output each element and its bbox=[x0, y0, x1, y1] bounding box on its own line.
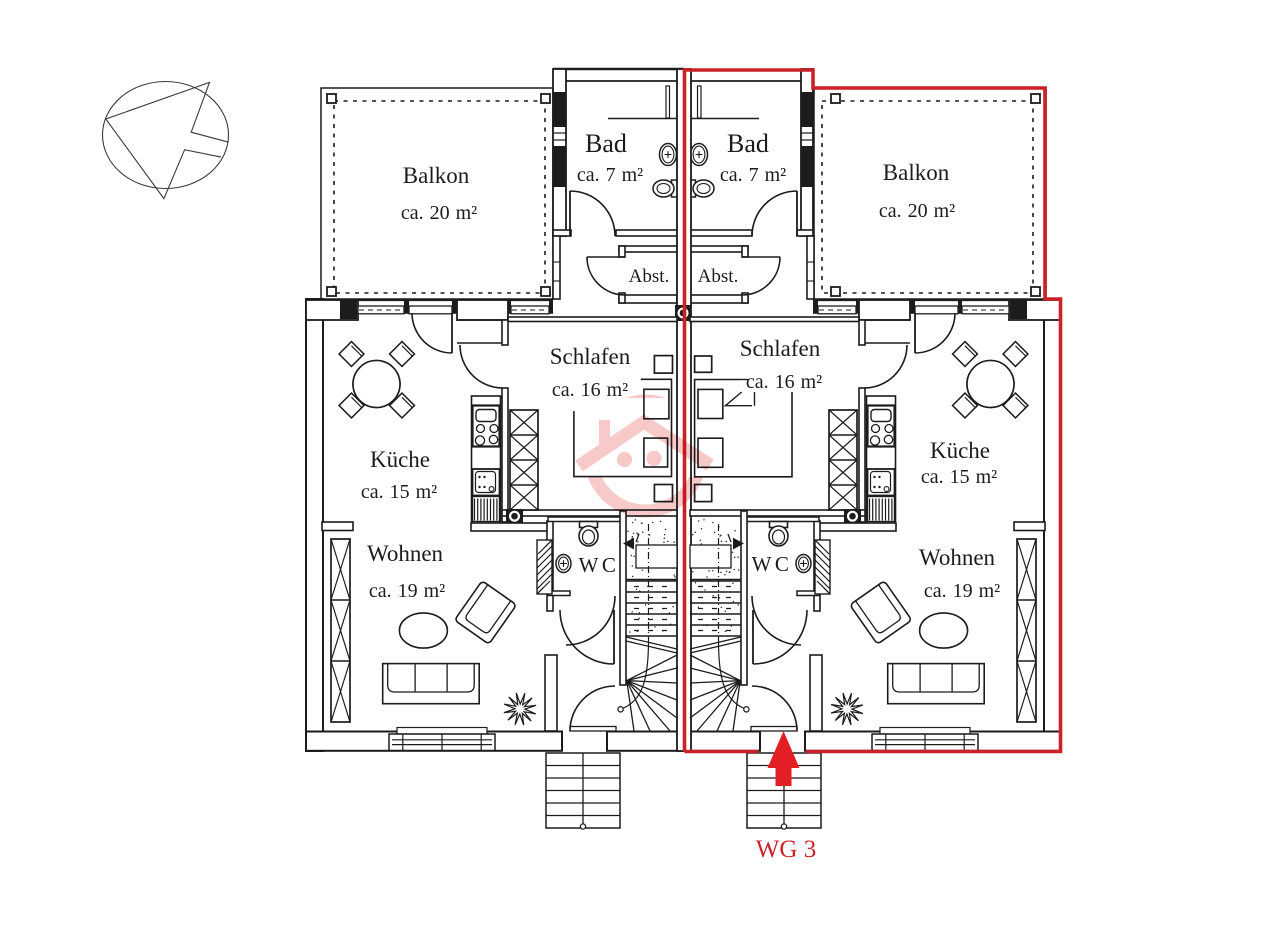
svg-text:Abst.: Abst. bbox=[698, 266, 739, 287]
svg-text:Abst.: Abst. bbox=[629, 266, 670, 287]
svg-text:Wohnen: Wohnen bbox=[367, 541, 444, 566]
svg-text:Schlafen: Schlafen bbox=[740, 336, 821, 361]
svg-text:Wohnen: Wohnen bbox=[919, 545, 996, 570]
svg-text:Balkon: Balkon bbox=[883, 160, 950, 185]
svg-text:ca. 15 m²: ca. 15 m² bbox=[921, 466, 997, 488]
svg-text:ca. 16 m²: ca. 16 m² bbox=[746, 371, 822, 393]
svg-text:ca. 20 m²: ca. 20 m² bbox=[879, 200, 955, 222]
svg-text:ca. 20 m²: ca. 20 m² bbox=[401, 202, 477, 224]
svg-text:WG 3: WG 3 bbox=[756, 836, 816, 863]
svg-text:Schlafen: Schlafen bbox=[550, 344, 631, 369]
svg-text:ca. 19 m²: ca. 19 m² bbox=[924, 580, 1000, 602]
svg-text:Bad: Bad bbox=[727, 129, 769, 158]
svg-text:Küche: Küche bbox=[930, 438, 990, 463]
svg-text:Balkon: Balkon bbox=[403, 163, 470, 188]
svg-text:WC: WC bbox=[752, 552, 793, 576]
svg-text:ca. 15 m²: ca. 15 m² bbox=[361, 481, 437, 503]
svg-text:ca. 7 m²: ca. 7 m² bbox=[720, 164, 786, 186]
svg-text:ca. 16 m²: ca. 16 m² bbox=[552, 379, 628, 401]
svg-text:WC: WC bbox=[579, 553, 620, 577]
svg-text:Küche: Küche bbox=[370, 447, 430, 472]
svg-text:ca. 19 m²: ca. 19 m² bbox=[369, 580, 445, 602]
svg-text:Bad: Bad bbox=[585, 129, 627, 158]
svg-text:ca. 7 m²: ca. 7 m² bbox=[577, 164, 643, 186]
